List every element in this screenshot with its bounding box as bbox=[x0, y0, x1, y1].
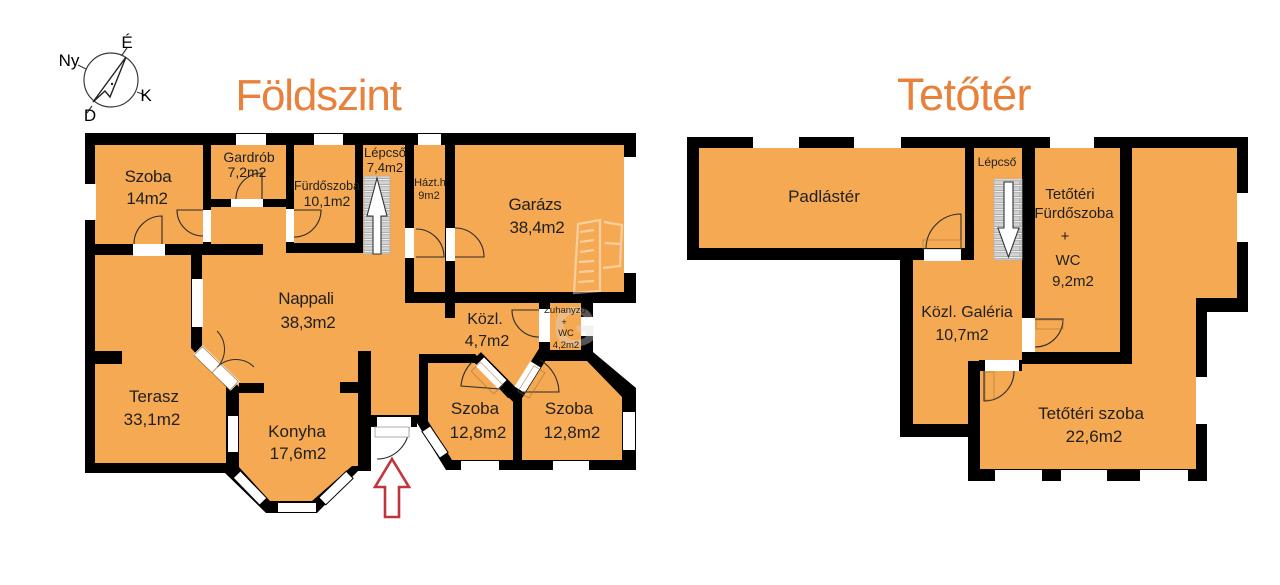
svg-text:Szoba: Szoba bbox=[545, 399, 594, 418]
svg-text:Szoba: Szoba bbox=[125, 167, 173, 186]
svg-text:Házt.h: Házt.h bbox=[414, 177, 446, 189]
svg-text:É: É bbox=[121, 33, 132, 52]
svg-text:14m2: 14m2 bbox=[126, 189, 167, 208]
svg-text:Terasz: Terasz bbox=[129, 387, 179, 406]
svg-text:12,8m2: 12,8m2 bbox=[450, 423, 507, 442]
svg-text:Közl. Galéria: Közl. Galéria bbox=[921, 304, 1013, 321]
svg-text:Konyha: Konyha bbox=[268, 422, 326, 441]
svg-text:33,1m2: 33,1m2 bbox=[124, 410, 181, 429]
svg-text:10,1m2: 10,1m2 bbox=[304, 193, 351, 209]
svg-text:17,6m2: 17,6m2 bbox=[270, 444, 327, 463]
svg-text:10,7m2: 10,7m2 bbox=[935, 327, 988, 344]
svg-text:Fürdőszoba: Fürdőszoba bbox=[294, 179, 360, 193]
svg-text:Lépcső: Lépcső bbox=[978, 155, 1017, 169]
svg-text:4,2m2: 4,2m2 bbox=[553, 340, 579, 351]
svg-text:WC: WC bbox=[558, 328, 574, 339]
svg-text:K: K bbox=[140, 86, 152, 105]
svg-text:4,7m2: 4,7m2 bbox=[465, 333, 510, 350]
svg-text:Szoba: Szoba bbox=[451, 399, 500, 418]
svg-text:Garázs: Garázs bbox=[509, 195, 562, 214]
svg-text:Lépcső: Lépcső bbox=[364, 145, 406, 160]
svg-text:Padlástér: Padlástér bbox=[788, 187, 860, 206]
svg-text:+: + bbox=[561, 317, 567, 328]
svg-text:Tetőtér: Tetőtér bbox=[897, 69, 1032, 120]
svg-text:22,6m2: 22,6m2 bbox=[1066, 427, 1123, 446]
svg-text:Földszint: Földszint bbox=[235, 71, 401, 120]
svg-text:Ny: Ny bbox=[59, 51, 80, 70]
svg-text:38,3m2: 38,3m2 bbox=[281, 313, 336, 332]
svg-text:+: + bbox=[1061, 228, 1070, 245]
svg-text:Tetőtéri: Tetőtéri bbox=[1045, 186, 1094, 203]
svg-text:7,2m2: 7,2m2 bbox=[228, 164, 267, 180]
svg-text:9,2m2: 9,2m2 bbox=[1052, 273, 1094, 290]
svg-text:9m2: 9m2 bbox=[418, 190, 439, 202]
svg-text:Gardrób: Gardrób bbox=[223, 149, 275, 165]
svg-text:Közl.: Közl. bbox=[467, 311, 503, 328]
svg-text:Tetőtéri szoba: Tetőtéri szoba bbox=[1038, 404, 1144, 423]
svg-text:Zuhanyzó: Zuhanyzó bbox=[544, 305, 586, 316]
svg-text:38,4m2: 38,4m2 bbox=[510, 218, 565, 237]
svg-text:WC: WC bbox=[1056, 252, 1081, 269]
svg-text:D: D bbox=[84, 106, 96, 125]
svg-text:7,4m2: 7,4m2 bbox=[367, 160, 403, 175]
svg-text:Nappali: Nappali bbox=[278, 289, 334, 308]
svg-text:12,8m2: 12,8m2 bbox=[544, 423, 601, 442]
svg-text:Fürdőszoba: Fürdőszoba bbox=[1034, 205, 1114, 222]
